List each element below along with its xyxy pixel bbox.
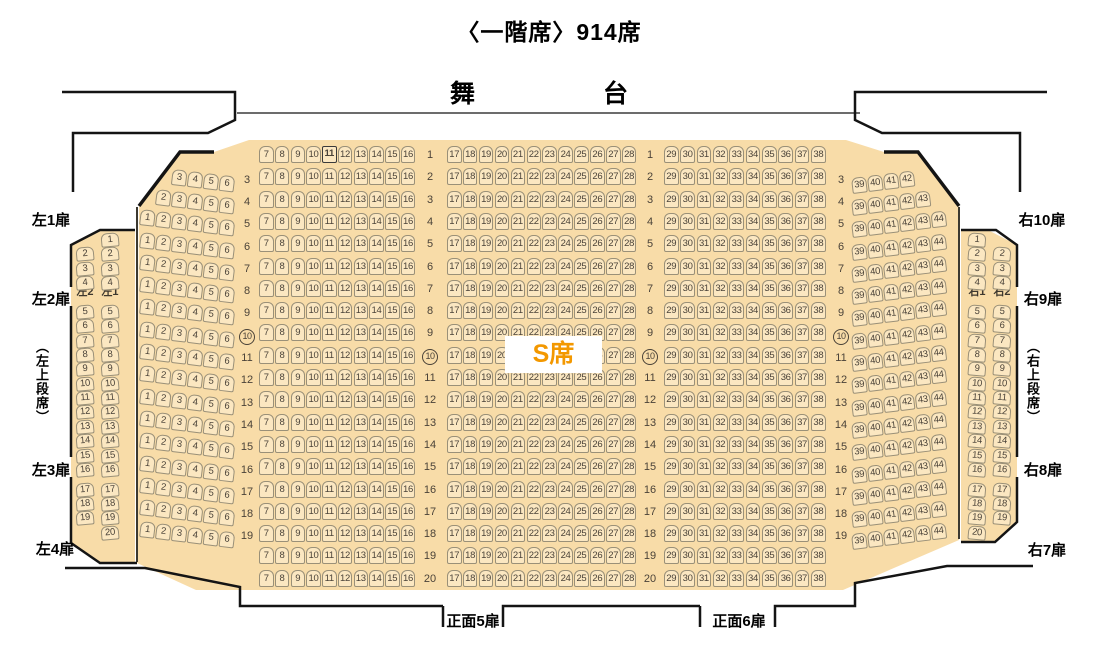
seat-6[interactable]: 6	[992, 319, 1011, 334]
seat-21[interactable]: 21	[511, 280, 526, 297]
seat-36[interactable]: 36	[778, 503, 793, 520]
seat-18[interactable]: 18	[992, 496, 1011, 511]
seat-3[interactable]: 3	[171, 414, 188, 432]
seat-11[interactable]: 11	[322, 458, 337, 475]
seat-16[interactable]: 16	[401, 570, 416, 587]
seat-2[interactable]: 2	[992, 247, 1011, 262]
seat-42[interactable]: 42	[899, 527, 916, 545]
seat-5[interactable]: 5	[203, 262, 220, 280]
seat-5[interactable]: 5	[203, 418, 220, 436]
seat-16[interactable]: 16	[100, 462, 119, 477]
seat-10[interactable]: 10	[306, 481, 321, 498]
seat-32[interactable]: 32	[713, 547, 728, 564]
seat-30[interactable]: 30	[680, 525, 695, 542]
seat-39[interactable]: 39	[851, 332, 868, 350]
seat-4[interactable]: 4	[100, 275, 119, 290]
seat-36[interactable]: 36	[778, 302, 793, 319]
seat-5[interactable]: 5	[203, 440, 220, 458]
seat-23[interactable]: 23	[542, 191, 557, 208]
seat-30[interactable]: 30	[680, 146, 695, 163]
seat-34[interactable]: 34	[746, 570, 761, 587]
seat-42[interactable]: 42	[899, 482, 916, 500]
seat-9[interactable]: 9	[291, 547, 306, 564]
seat-32[interactable]: 32	[713, 503, 728, 520]
seat-7[interactable]: 7	[992, 333, 1011, 348]
seat-17[interactable]: 17	[447, 324, 462, 341]
seat-19[interactable]: 19	[992, 511, 1011, 526]
seat-11[interactable]: 11	[100, 390, 119, 405]
seat-31[interactable]: 31	[697, 258, 712, 275]
seat-19[interactable]: 19	[479, 213, 494, 230]
seat-14[interactable]: 14	[369, 258, 384, 275]
seat-34[interactable]: 34	[746, 436, 761, 453]
seat-37[interactable]: 37	[795, 168, 810, 185]
seat-15[interactable]: 15	[385, 280, 400, 297]
seat-30[interactable]: 30	[680, 258, 695, 275]
seat-30[interactable]: 30	[680, 168, 695, 185]
seat-33[interactable]: 33	[729, 436, 744, 453]
seat-25[interactable]: 25	[574, 503, 589, 520]
seat-42[interactable]: 42	[899, 348, 916, 366]
seat-15[interactable]: 15	[385, 235, 400, 252]
seat-4[interactable]: 4	[187, 237, 204, 255]
seat-21[interactable]: 21	[511, 525, 526, 542]
seat-8[interactable]: 8	[275, 481, 290, 498]
seat-31[interactable]: 31	[697, 481, 712, 498]
seat-13[interactable]: 13	[354, 547, 369, 564]
seat-26[interactable]: 26	[590, 213, 605, 230]
seat-7[interactable]: 7	[259, 168, 274, 185]
seat-44[interactable]: 44	[930, 389, 947, 407]
seat-20[interactable]: 20	[495, 525, 510, 542]
seat-24[interactable]: 24	[558, 258, 573, 275]
seat-12[interactable]: 12	[338, 235, 353, 252]
seat-14[interactable]: 14	[369, 503, 384, 520]
seat-19[interactable]: 19	[967, 511, 986, 526]
seat-4[interactable]: 4	[967, 275, 986, 290]
seat-22[interactable]: 22	[527, 458, 542, 475]
seat-20[interactable]: 20	[495, 547, 510, 564]
seat-2[interactable]: 2	[155, 189, 172, 207]
seat-18[interactable]: 18	[463, 235, 478, 252]
seat-37[interactable]: 37	[795, 213, 810, 230]
seat-4[interactable]: 4	[187, 171, 204, 189]
seat-2[interactable]: 2	[75, 247, 94, 262]
seat-21[interactable]: 21	[511, 391, 526, 408]
seat-8[interactable]: 8	[967, 347, 986, 362]
seat-35[interactable]: 35	[762, 213, 777, 230]
seat-17[interactable]: 17	[447, 525, 462, 542]
seat-26[interactable]: 26	[590, 414, 605, 431]
seat-40[interactable]: 40	[867, 375, 884, 393]
seat-30[interactable]: 30	[680, 302, 695, 319]
seat-4[interactable]: 4	[187, 327, 204, 345]
seat-36[interactable]: 36	[778, 436, 793, 453]
seat-24[interactable]: 24	[558, 235, 573, 252]
seat-15[interactable]: 15	[100, 448, 119, 463]
seat-25[interactable]: 25	[574, 436, 589, 453]
seat-19[interactable]: 19	[479, 458, 494, 475]
seat-29[interactable]: 29	[664, 570, 679, 587]
seat-14[interactable]: 14	[369, 391, 384, 408]
seat-31[interactable]: 31	[697, 146, 712, 163]
seat-38[interactable]: 38	[811, 302, 826, 319]
seat-22[interactable]: 22	[527, 436, 542, 453]
seat-25[interactable]: 25	[574, 458, 589, 475]
seat-14[interactable]: 14	[369, 235, 384, 252]
seat-43[interactable]: 43	[914, 503, 931, 521]
seat-29[interactable]: 29	[664, 168, 679, 185]
seat-22[interactable]: 22	[527, 547, 542, 564]
seat-39[interactable]: 39	[851, 176, 868, 194]
seat-16[interactable]: 16	[401, 369, 416, 386]
seat-38[interactable]: 38	[811, 213, 826, 230]
seat-5[interactable]: 5	[203, 284, 220, 302]
seat-11[interactable]: 11	[322, 525, 337, 542]
seat-36[interactable]: 36	[778, 235, 793, 252]
seat-33[interactable]: 33	[729, 391, 744, 408]
seat-29[interactable]: 29	[664, 213, 679, 230]
seat-37[interactable]: 37	[795, 547, 810, 564]
seat-9[interactable]: 9	[291, 168, 306, 185]
seat-1[interactable]: 1	[967, 232, 986, 247]
seat-9[interactable]: 9	[291, 280, 306, 297]
seat-26[interactable]: 26	[590, 503, 605, 520]
seat-26[interactable]: 26	[590, 302, 605, 319]
seat-42[interactable]: 42	[899, 237, 916, 255]
seat-3[interactable]: 3	[171, 235, 188, 253]
seat-7[interactable]: 7	[259, 458, 274, 475]
seat-17[interactable]: 17	[447, 213, 462, 230]
seat-12[interactable]: 12	[338, 547, 353, 564]
seat-19[interactable]: 19	[479, 347, 494, 364]
seat-10[interactable]: 10	[306, 280, 321, 297]
seat-23[interactable]: 23	[542, 258, 557, 275]
seat-25[interactable]: 25	[574, 481, 589, 498]
seat-35[interactable]: 35	[762, 547, 777, 564]
seat-28[interactable]: 28	[622, 369, 637, 386]
seat-23[interactable]: 23	[542, 458, 557, 475]
seat-31[interactable]: 31	[697, 235, 712, 252]
seat-20[interactable]: 20	[495, 302, 510, 319]
seat-37[interactable]: 37	[795, 258, 810, 275]
seat-5[interactable]: 5	[203, 217, 220, 235]
seat-16[interactable]: 16	[401, 213, 416, 230]
seat-23[interactable]: 23	[542, 436, 557, 453]
seat-2[interactable]: 2	[155, 479, 172, 497]
seat-38[interactable]: 38	[811, 525, 826, 542]
seat-31[interactable]: 31	[697, 302, 712, 319]
seat-11[interactable]: 11	[967, 390, 986, 405]
seat-40[interactable]: 40	[867, 196, 884, 214]
seat-14[interactable]: 14	[369, 481, 384, 498]
seat-30[interactable]: 30	[680, 547, 695, 564]
seat-18[interactable]: 18	[463, 436, 478, 453]
seat-13[interactable]: 13	[354, 191, 369, 208]
seat-18[interactable]: 18	[463, 525, 478, 542]
seat-16[interactable]: 16	[401, 302, 416, 319]
seat-32[interactable]: 32	[713, 436, 728, 453]
seat-18[interactable]: 18	[463, 302, 478, 319]
seat-31[interactable]: 31	[697, 369, 712, 386]
seat-36[interactable]: 36	[778, 570, 793, 587]
seat-28[interactable]: 28	[622, 191, 637, 208]
seat-38[interactable]: 38	[811, 191, 826, 208]
seat-17[interactable]: 17	[447, 258, 462, 275]
seat-17[interactable]: 17	[967, 482, 986, 497]
seat-20[interactable]: 20	[967, 525, 986, 540]
seat-22[interactable]: 22	[527, 191, 542, 208]
seat-40[interactable]: 40	[867, 441, 884, 459]
seat-10[interactable]: 10	[75, 376, 94, 391]
seat-23[interactable]: 23	[542, 280, 557, 297]
seat-22[interactable]: 22	[527, 414, 542, 431]
seat-6[interactable]: 6	[218, 197, 235, 215]
seat-13[interactable]: 13	[967, 419, 986, 434]
seat-9[interactable]: 9	[967, 362, 986, 377]
seat-14[interactable]: 14	[369, 436, 384, 453]
seat-33[interactable]: 33	[729, 503, 744, 520]
seat-9[interactable]: 9	[291, 503, 306, 520]
seat-44[interactable]: 44	[930, 367, 947, 385]
seat-12[interactable]: 12	[338, 324, 353, 341]
seat-39[interactable]: 39	[851, 354, 868, 372]
seat-28[interactable]: 28	[622, 570, 637, 587]
seat-39[interactable]: 39	[851, 533, 868, 551]
seat-16[interactable]: 16	[401, 258, 416, 275]
seat-21[interactable]: 21	[511, 414, 526, 431]
seat-35[interactable]: 35	[762, 458, 777, 475]
seat-8[interactable]: 8	[275, 391, 290, 408]
seat-18[interactable]: 18	[463, 570, 478, 587]
seat-30[interactable]: 30	[680, 414, 695, 431]
seat-13[interactable]: 13	[354, 324, 369, 341]
seat-19[interactable]: 19	[479, 503, 494, 520]
seat-21[interactable]: 21	[511, 481, 526, 498]
seat-20[interactable]: 20	[495, 391, 510, 408]
seat-6[interactable]: 6	[218, 464, 235, 482]
seat-14[interactable]: 14	[369, 369, 384, 386]
seat-11[interactable]: 11	[322, 436, 337, 453]
seat-12[interactable]: 12	[967, 405, 986, 420]
seat-31[interactable]: 31	[697, 347, 712, 364]
seat-29[interactable]: 29	[664, 458, 679, 475]
seat-14[interactable]: 14	[992, 433, 1011, 448]
seat-6[interactable]: 6	[218, 286, 235, 304]
seat-14[interactable]: 14	[369, 458, 384, 475]
seat-30[interactable]: 30	[680, 213, 695, 230]
seat-22[interactable]: 22	[527, 302, 542, 319]
seat-30[interactable]: 30	[680, 369, 695, 386]
seat-23[interactable]: 23	[542, 146, 557, 163]
seat-15[interactable]: 15	[385, 369, 400, 386]
seat-29[interactable]: 29	[664, 191, 679, 208]
seat-12[interactable]: 12	[338, 414, 353, 431]
seat-37[interactable]: 37	[795, 391, 810, 408]
seat-30[interactable]: 30	[680, 280, 695, 297]
seat-23[interactable]: 23	[542, 525, 557, 542]
seat-42[interactable]: 42	[899, 326, 916, 344]
seat-22[interactable]: 22	[527, 213, 542, 230]
seat-7[interactable]: 7	[259, 235, 274, 252]
seat-39[interactable]: 39	[851, 466, 868, 484]
seat-26[interactable]: 26	[590, 570, 605, 587]
seat-37[interactable]: 37	[795, 570, 810, 587]
seat-19[interactable]: 19	[479, 436, 494, 453]
seat-35[interactable]: 35	[762, 436, 777, 453]
seat-16[interactable]: 16	[401, 414, 416, 431]
seat-27[interactable]: 27	[606, 570, 621, 587]
seat-1[interactable]: 1	[139, 321, 156, 339]
seat-35[interactable]: 35	[762, 570, 777, 587]
seat-25[interactable]: 25	[574, 191, 589, 208]
seat-24[interactable]: 24	[558, 191, 573, 208]
seat-18[interactable]: 18	[463, 213, 478, 230]
seat-36[interactable]: 36	[778, 191, 793, 208]
seat-13[interactable]: 13	[100, 419, 119, 434]
seat-20[interactable]: 20	[495, 570, 510, 587]
seat-16[interactable]: 16	[401, 525, 416, 542]
seat-39[interactable]: 39	[851, 488, 868, 506]
seat-4[interactable]: 4	[187, 371, 204, 389]
seat-7[interactable]: 7	[259, 525, 274, 542]
seat-2[interactable]: 2	[155, 345, 172, 363]
seat-9[interactable]: 9	[291, 324, 306, 341]
seat-8[interactable]: 8	[275, 570, 290, 587]
seat-10[interactable]: 10	[306, 235, 321, 252]
seat-36[interactable]: 36	[778, 347, 793, 364]
seat-5[interactable]: 5	[203, 351, 220, 369]
seat-27[interactable]: 27	[606, 302, 621, 319]
seat-12[interactable]: 12	[338, 391, 353, 408]
seat-8[interactable]: 8	[275, 347, 290, 364]
seat-27[interactable]: 27	[606, 481, 621, 498]
seat-10[interactable]: 10	[992, 376, 1011, 391]
seat-44[interactable]: 44	[930, 434, 947, 452]
seat-14[interactable]: 14	[369, 280, 384, 297]
seat-19[interactable]: 19	[479, 324, 494, 341]
seat-33[interactable]: 33	[729, 547, 744, 564]
seat-25[interactable]: 25	[574, 414, 589, 431]
seat-34[interactable]: 34	[746, 369, 761, 386]
seat-12[interactable]: 12	[338, 146, 353, 163]
seat-31[interactable]: 31	[697, 324, 712, 341]
seat-17[interactable]: 17	[447, 503, 462, 520]
seat-24[interactable]: 24	[558, 391, 573, 408]
seat-19[interactable]: 19	[479, 391, 494, 408]
seat-16[interactable]: 16	[401, 191, 416, 208]
seat-31[interactable]: 31	[697, 213, 712, 230]
seat-16[interactable]: 16	[401, 436, 416, 453]
seat-24[interactable]: 24	[558, 302, 573, 319]
seat-44[interactable]: 44	[930, 300, 947, 318]
seat-7[interactable]: 7	[259, 570, 274, 587]
seat-3[interactable]: 3	[171, 369, 188, 387]
seat-15[interactable]: 15	[385, 570, 400, 587]
seat-11[interactable]: 11	[992, 390, 1011, 405]
seat-6[interactable]: 6	[218, 264, 235, 282]
seat-38[interactable]: 38	[811, 324, 826, 341]
seat-20[interactable]: 20	[495, 481, 510, 498]
seat-36[interactable]: 36	[778, 481, 793, 498]
seat-13[interactable]: 13	[354, 570, 369, 587]
seat-12[interactable]: 12	[338, 168, 353, 185]
seat-11[interactable]: 11	[322, 280, 337, 297]
seat-15[interactable]: 15	[385, 525, 400, 542]
seat-24[interactable]: 24	[558, 168, 573, 185]
seat-37[interactable]: 37	[795, 414, 810, 431]
seat-11[interactable]: 11	[322, 258, 337, 275]
seat-18[interactable]: 18	[463, 391, 478, 408]
seat-4[interactable]: 4	[187, 460, 204, 478]
seat-40[interactable]: 40	[867, 174, 884, 192]
seat-17[interactable]: 17	[447, 436, 462, 453]
seat-9[interactable]: 9	[291, 369, 306, 386]
seat-37[interactable]: 37	[795, 369, 810, 386]
seat-12[interactable]: 12	[992, 405, 1011, 420]
seat-23[interactable]: 23	[542, 414, 557, 431]
seat-2[interactable]: 2	[155, 211, 172, 229]
seat-33[interactable]: 33	[729, 369, 744, 386]
seat-22[interactable]: 22	[527, 481, 542, 498]
seat-8[interactable]: 8	[275, 302, 290, 319]
seat-9[interactable]: 9	[291, 525, 306, 542]
seat-35[interactable]: 35	[762, 347, 777, 364]
seat-34[interactable]: 34	[746, 503, 761, 520]
seat-13[interactable]: 13	[354, 347, 369, 364]
seat-9[interactable]: 9	[291, 391, 306, 408]
seat-28[interactable]: 28	[622, 258, 637, 275]
seat-30[interactable]: 30	[680, 391, 695, 408]
seat-17[interactable]: 17	[447, 235, 462, 252]
seat-1[interactable]: 1	[139, 254, 156, 272]
seat-41[interactable]: 41	[883, 239, 900, 257]
seat-16[interactable]: 16	[401, 503, 416, 520]
seat-8[interactable]: 8	[275, 458, 290, 475]
seat-20[interactable]: 20	[495, 146, 510, 163]
seat-35[interactable]: 35	[762, 146, 777, 163]
seat-11[interactable]: 11	[322, 547, 337, 564]
seat-17[interactable]: 17	[447, 146, 462, 163]
seat-15[interactable]: 15	[385, 481, 400, 498]
seat-29[interactable]: 29	[664, 503, 679, 520]
seat-7[interactable]: 7	[259, 391, 274, 408]
seat-28[interactable]: 28	[622, 213, 637, 230]
seat-34[interactable]: 34	[746, 235, 761, 252]
seat-18[interactable]: 18	[463, 503, 478, 520]
seat-28[interactable]: 28	[622, 324, 637, 341]
seat-2[interactable]: 2	[155, 523, 172, 541]
seat-3[interactable]: 3	[100, 261, 119, 276]
seat-28[interactable]: 28	[622, 481, 637, 498]
seat-16[interactable]: 16	[401, 280, 416, 297]
seat-42[interactable]: 42	[899, 192, 916, 210]
seat-7[interactable]: 7	[259, 369, 274, 386]
seat-37[interactable]: 37	[795, 324, 810, 341]
seat-17[interactable]: 17	[992, 482, 1011, 497]
seat-21[interactable]: 21	[511, 570, 526, 587]
seat-24[interactable]: 24	[558, 213, 573, 230]
seat-15[interactable]: 15	[385, 391, 400, 408]
seat-15[interactable]: 15	[385, 414, 400, 431]
seat-30[interactable]: 30	[680, 503, 695, 520]
seat-27[interactable]: 27	[606, 324, 621, 341]
seat-7[interactable]: 7	[75, 333, 94, 348]
seat-7[interactable]: 7	[259, 547, 274, 564]
seat-32[interactable]: 32	[713, 347, 728, 364]
seat-27[interactable]: 27	[606, 547, 621, 564]
seat-12[interactable]: 12	[338, 302, 353, 319]
